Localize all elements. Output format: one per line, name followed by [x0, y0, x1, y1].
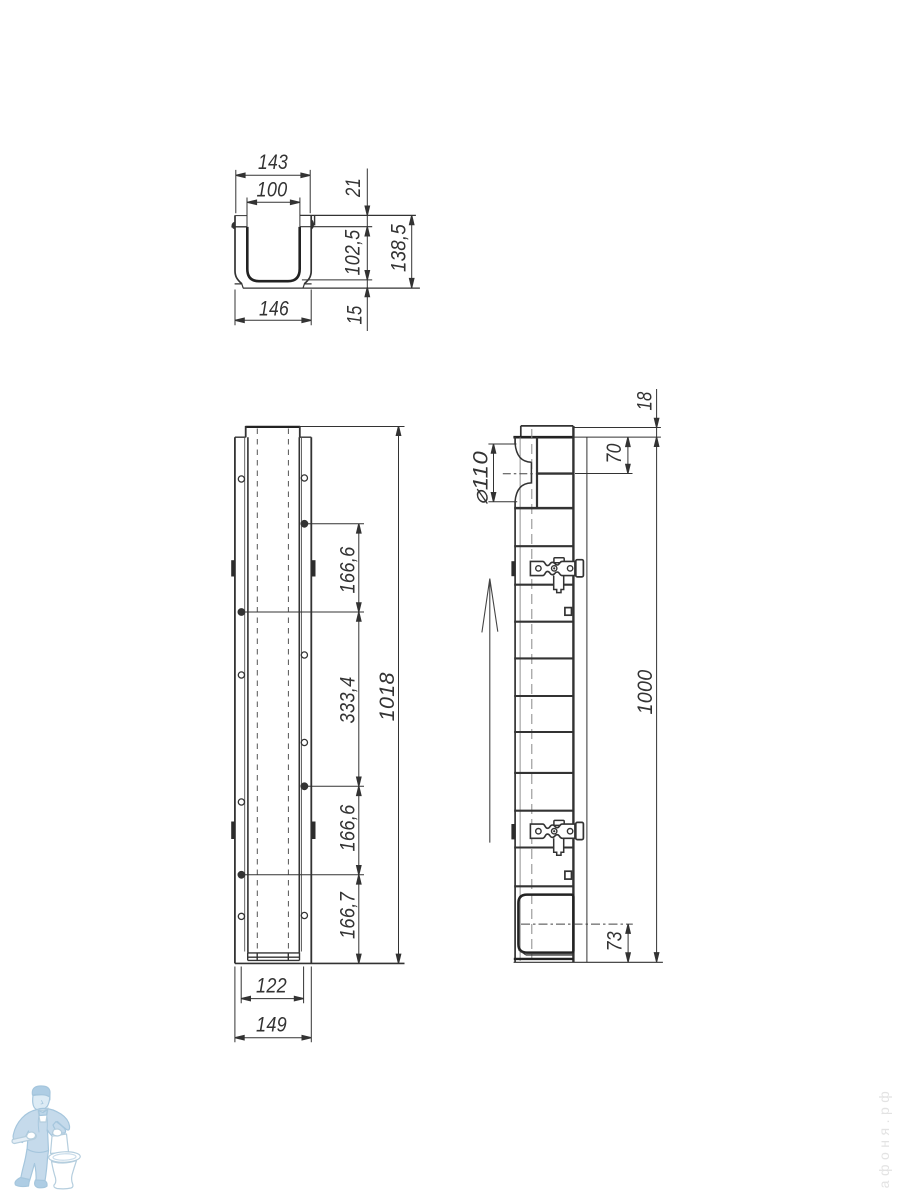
- svg-text:21: 21: [342, 178, 365, 198]
- svg-text:1000: 1000: [634, 669, 657, 714]
- svg-text:73: 73: [603, 931, 626, 951]
- svg-text:143: 143: [258, 151, 288, 174]
- svg-text:102,5: 102,5: [341, 229, 364, 275]
- svg-text:18: 18: [634, 391, 657, 410]
- svg-text:333,4: 333,4: [336, 677, 359, 724]
- svg-text:146: 146: [259, 298, 289, 321]
- svg-text:166,6: 166,6: [336, 546, 359, 593]
- svg-text:1018: 1018: [376, 672, 399, 721]
- svg-text:70: 70: [603, 443, 626, 463]
- svg-text:166,6: 166,6: [336, 804, 359, 851]
- svg-text:15: 15: [343, 305, 366, 324]
- svg-text:149: 149: [256, 1014, 287, 1037]
- svg-text:166,7: 166,7: [336, 891, 359, 939]
- svg-text:122: 122: [256, 975, 287, 998]
- svg-text:138,5: 138,5: [387, 224, 410, 272]
- svg-text:афоня.рф: афоня.рф: [876, 1087, 892, 1189]
- svg-text:100: 100: [257, 178, 288, 201]
- svg-text:⌀110: ⌀110: [470, 451, 493, 505]
